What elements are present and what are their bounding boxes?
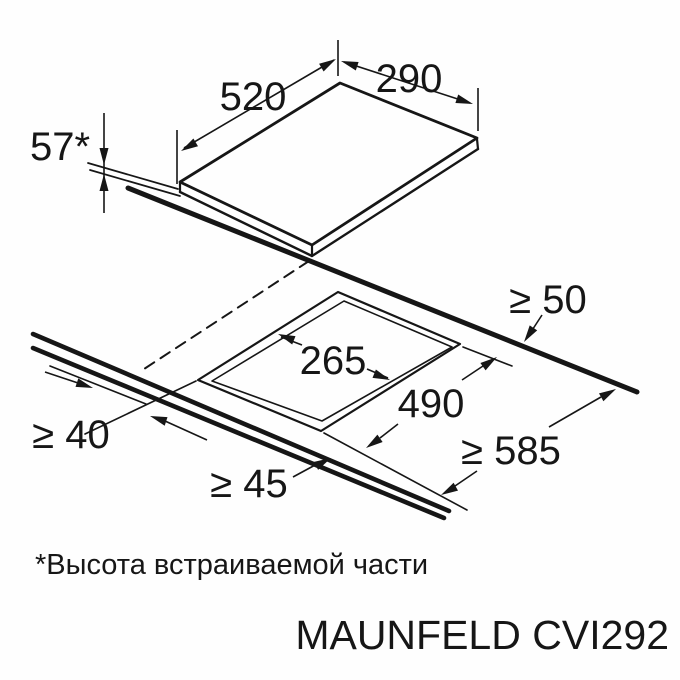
front-edge-parallel-thin-line bbox=[50, 366, 146, 404]
clearance-585-arrow-lower bbox=[441, 483, 458, 495]
installation-diagram: 520 290 57* bbox=[0, 0, 680, 680]
dim-57-arrow-down bbox=[100, 148, 109, 165]
footnote-text: *Высота встраиваемой части bbox=[35, 549, 428, 581]
dim-290-label: 290 bbox=[376, 57, 443, 101]
dimension-265: 265 bbox=[278, 334, 390, 383]
dim-490-arrow-upper bbox=[480, 357, 497, 370]
clearance-585-label: ≥ 585 bbox=[461, 429, 561, 473]
dim-490-arrow-lower bbox=[366, 435, 383, 448]
brand-model-text: MAUNFELD CVI292 bbox=[295, 612, 669, 658]
clearance-45-label: ≥ 45 bbox=[210, 462, 288, 506]
dim-520-label: 520 bbox=[220, 75, 287, 119]
dimension-290: 290 bbox=[341, 57, 478, 131]
installation-diagram-page: 520 290 57* bbox=[0, 0, 680, 680]
dim-57-arrow-up bbox=[100, 174, 109, 191]
clearance-50-arrow bbox=[524, 325, 537, 342]
clearance-50: ≥ 50 bbox=[509, 278, 587, 342]
clearance-585-leader-upper bbox=[549, 397, 601, 427]
dimension-520: 520 bbox=[177, 40, 338, 184]
dim-520-arrow-upper bbox=[319, 59, 336, 72]
projection-dashed-line bbox=[141, 261, 309, 371]
dim-290-arrow-left bbox=[341, 61, 359, 71]
clearance-40-arrow-right bbox=[150, 416, 168, 426]
dim-490-label: 490 bbox=[398, 382, 465, 426]
clearance-585-arrow-upper bbox=[599, 389, 616, 401]
clearance-40-label: ≥ 40 bbox=[32, 413, 110, 457]
clearance-45-leader bbox=[293, 464, 317, 477]
clearance-40-leader-left bbox=[45, 372, 78, 383]
clearance-40-leader-right bbox=[165, 421, 207, 440]
dim-290-arrow-right bbox=[455, 95, 473, 105]
dim-57-label: 57* bbox=[30, 125, 90, 169]
clearance-50-label: ≥ 50 bbox=[509, 278, 587, 322]
dim-490-line-upper bbox=[462, 366, 483, 380]
plate-corner-right-edge bbox=[477, 139, 478, 149]
dim-490-line-lower bbox=[380, 424, 398, 438]
dimension-57: 57* bbox=[30, 113, 109, 213]
clearance-585-leader-lower bbox=[455, 471, 477, 486]
dim-265-arrow-right bbox=[373, 370, 391, 381]
dim-265-label: 265 bbox=[300, 339, 367, 383]
clearance-585: ≥ 585 bbox=[441, 389, 616, 495]
